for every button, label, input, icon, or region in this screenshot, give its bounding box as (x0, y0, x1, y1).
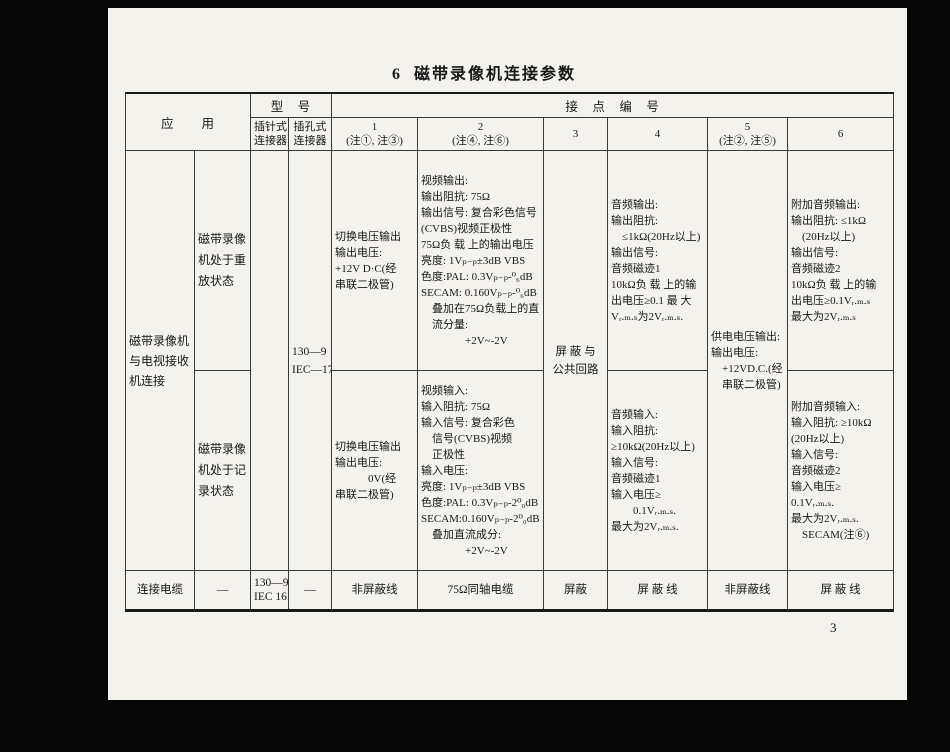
connection-parameters-table: 应 用 型 号 接 点 编 号 插针式 连接器 插孔式 连接器 1 (注①, 注… (125, 92, 894, 612)
cell-cable-pin: 130—9 IEC 16 (251, 571, 289, 611)
cell-pin-connector-body (251, 151, 289, 571)
page-title: 6 磁带录像机连接参数 (392, 60, 576, 84)
cell-record-contact4: 音频输入: 输入阻抗: ≥10kΩ(20Hz以上) 输入信号: 音频磁迹1 输入… (608, 371, 708, 571)
cell-cable-contact2: 75Ω同轴电缆 (418, 571, 544, 611)
cell-record-contact6: 附加音频输入: 输入阻抗: ≥10kΩ (20Hz以上) 输入信号: 音频磁迹2… (788, 371, 894, 571)
cell-playback-contact6: 附加音频输出: 输出阻抗: ≤1kΩ (20Hz以上) 输出信号: 音频磁迹2 … (788, 151, 894, 371)
header-contact-4: 4 (608, 118, 708, 151)
header-contact-3: 3 (544, 118, 608, 151)
header-application: 应 用 (126, 93, 251, 151)
header-contact-numbers: 接 点 编 号 (332, 93, 894, 118)
header-contact-5: 5 (注②, 注⑤) (708, 118, 788, 151)
header-pin-connector: 插针式 连接器 (251, 118, 289, 151)
cell-application: 磁带录像机 与电视接收 机连接 (126, 151, 195, 571)
cell-record-contact1: 切换电压输出 输出电压: 0V(经 串联二极管) (332, 371, 418, 571)
cell-cable-contact4: 屏 蔽 线 (608, 571, 708, 611)
cell-state-playback: 磁带录像 机处于重 放状态 (195, 151, 251, 371)
cell-cable-contact6: 屏 蔽 线 (788, 571, 894, 611)
cell-playback-contact1: 切换电压输出 输出电压: +12V D·C(经 串联二极管) (332, 151, 418, 371)
cell-shield-common: 屏 蔽 与 公共回路 (544, 151, 608, 571)
cell-playback-contact2: 视频输出: 输出阻抗: 75Ω 输出信号: 复合彩色信号 (CVBS)视频正极性… (418, 151, 544, 371)
cell-cable-jack: — (289, 571, 332, 611)
cell-cable-label: 连接电缆 (126, 571, 195, 611)
header-contact-1: 1 (注①, 注③) (332, 118, 418, 151)
cell-cable-contact5: 非屏蔽线 (708, 571, 788, 611)
header-contact-2: 2 (注④, 注⑥) (418, 118, 544, 151)
cell-playback-contact4: 音频输出: 输出阻抗: ≤1kΩ(20Hz以上) 输出信号: 音频磁迹1 10k… (608, 151, 708, 371)
scanned-document: { "page": { "title": "6 磁带录像机连接参数", "pag… (0, 0, 950, 752)
cell-state-record: 磁带录像 机处于记 录状态 (195, 371, 251, 571)
cell-record-contact2: 视频输入: 输入阻抗: 75Ω 输入信号: 复合彩色 信号(CVBS)视频 正极… (418, 371, 544, 571)
page-number: 3 (830, 620, 837, 636)
header-model: 型 号 (251, 93, 332, 118)
header-jack-connector: 插孔式 连接器 (289, 118, 332, 151)
cell-cable-state: — (195, 571, 251, 611)
header-contact-6: 6 (788, 118, 894, 151)
cell-jack-connector-model: 130—9 IEC—17 (289, 151, 332, 571)
cell-cable-contact3: 屏蔽 (544, 571, 608, 611)
document-page: 6 磁带录像机连接参数 应 用 型 号 接 点 编 号 插针式 连接器 插孔式 … (108, 8, 907, 700)
cell-cable-contact1: 非屏蔽线 (332, 571, 418, 611)
cell-supply-voltage: 供电电压输出: 输出电压: +12VD.C.(经 串联二极管) (708, 151, 788, 571)
